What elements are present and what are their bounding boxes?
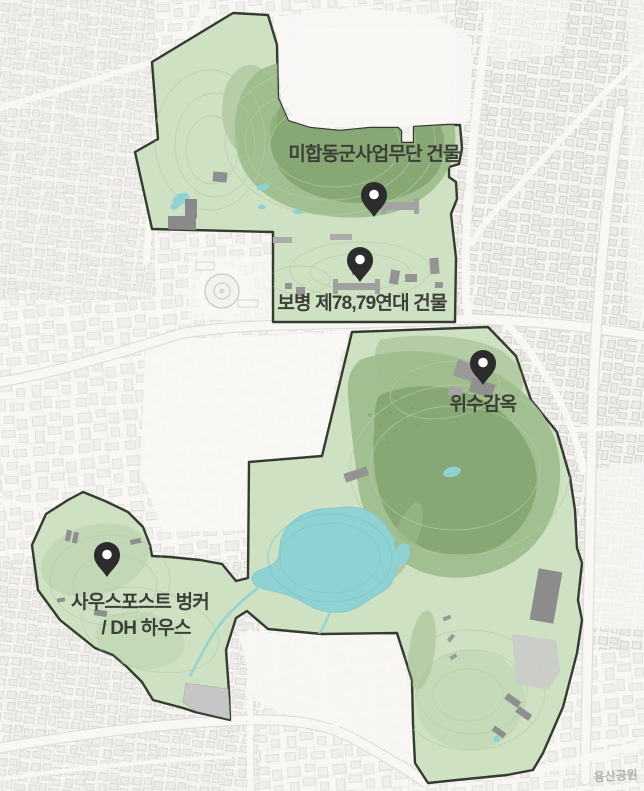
label-wisu-prison: 위수감옥	[450, 393, 517, 415]
map-svg: 미합동군사업무단 건물 보병 제78,79연대 건물 위수감옥 사우스포스트 벙…	[0, 0, 644, 791]
label-south-post-bunker-line2: / DH 하우스	[101, 617, 191, 639]
watermark: 용산공원	[593, 766, 638, 784]
label-us-joint-military-affairs: 미합동군사업무단 건물	[288, 143, 460, 165]
label-infantry-regiment: 보병 제78,79연대 건물	[277, 292, 447, 314]
label-south-post-bunker-line1: 사우스포스트 벙커	[71, 591, 209, 613]
park-map-canvas: 미합동군사업무단 건물 보병 제78,79연대 건물 위수감옥 사우스포스트 벙…	[0, 0, 644, 791]
